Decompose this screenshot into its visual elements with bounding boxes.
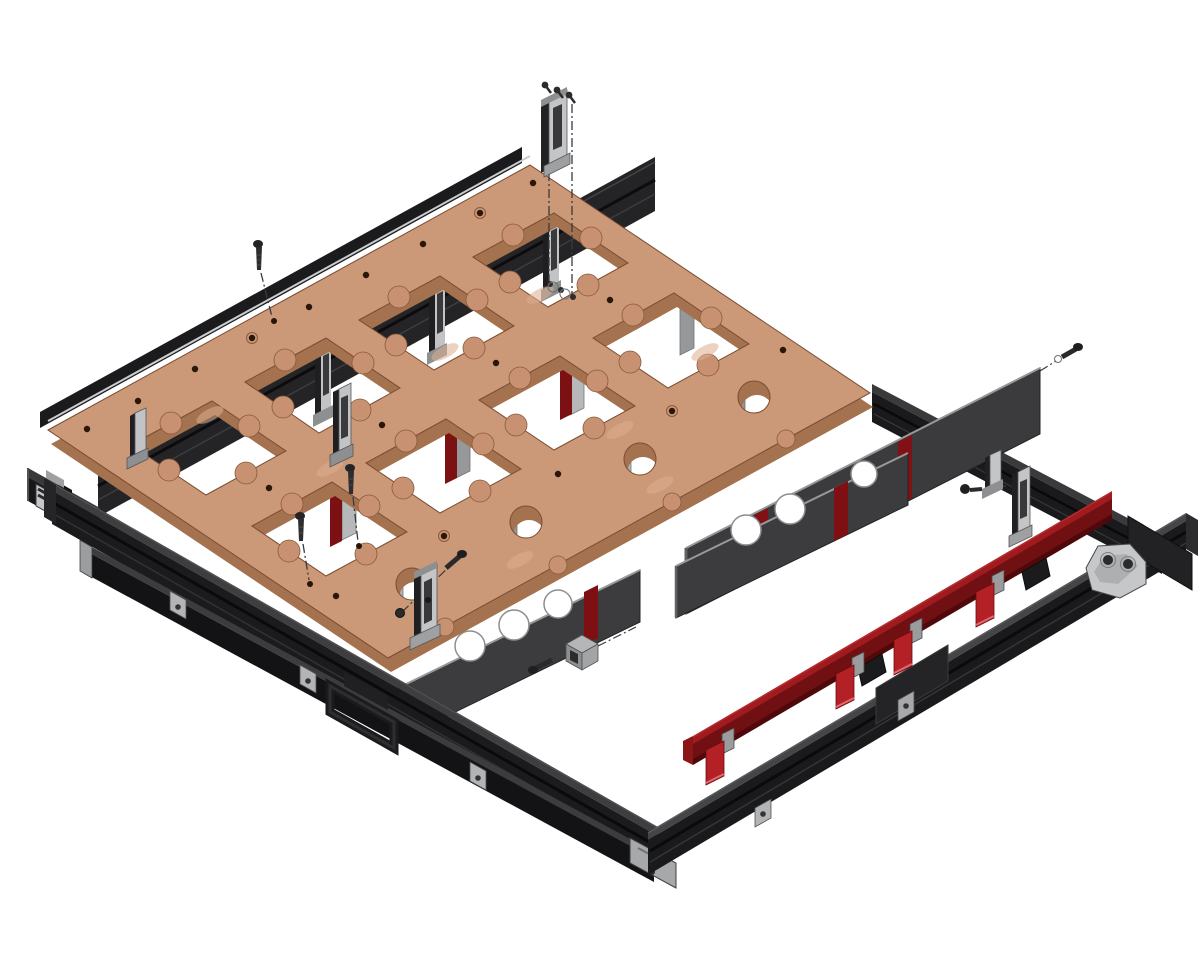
assembly-drawing — [0, 0, 1200, 960]
exploded-screw-right-fence — [1040, 343, 1083, 371]
cad-exploded-view-canvas — [0, 0, 1200, 960]
